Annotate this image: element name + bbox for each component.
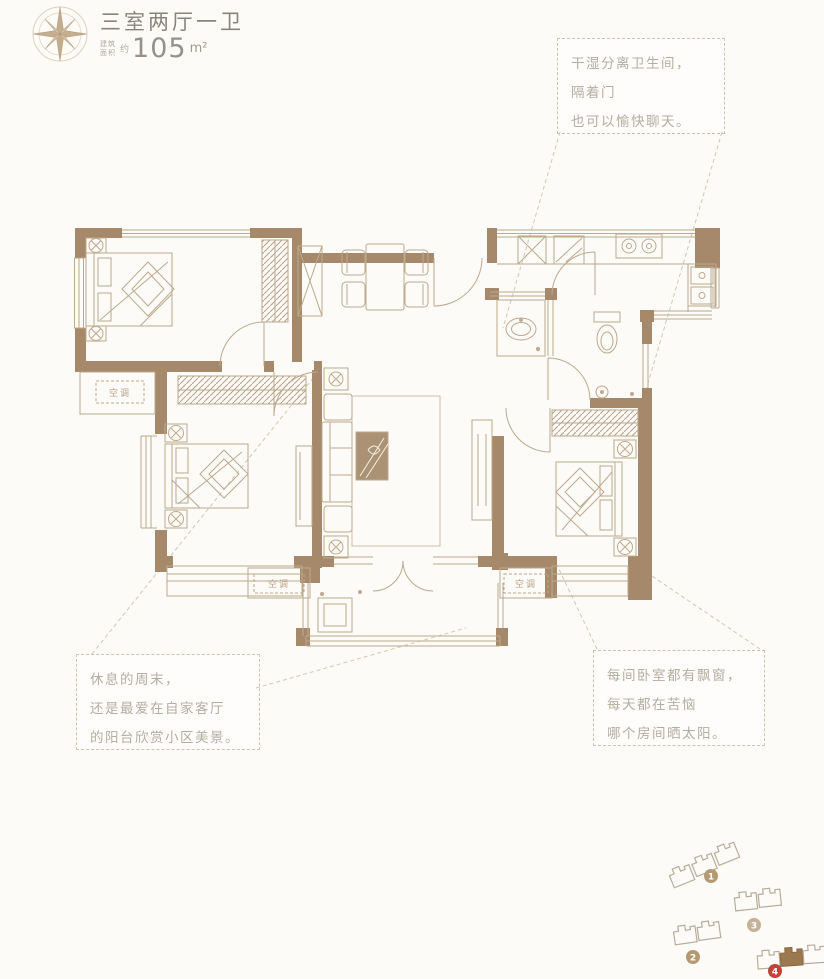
siteplan-building-3 [734,887,782,911]
floorplan-drawing: 空调 空调 空调 [0,0,824,979]
floorplan-page: 三室两厅一卫 建筑 面积 约 105 m² 干湿分离卫生间， 隔着门 也可以愉快… [0,0,824,979]
svg-text:空调: 空调 [515,578,537,590]
balcony-fixtures [318,591,362,633]
living-room-furniture [322,368,492,558]
building-badge-1: 1 [708,873,714,883]
bedroom2-furniture [165,376,312,528]
callout-leader-lines [92,132,760,688]
master-bedroom-furniture [552,410,638,556]
bedroom1-furniture [86,238,322,341]
bathroom-fixtures [497,300,634,398]
siteplan-building-4 [757,944,824,969]
siteplan: 1 2 3 4 [666,840,824,978]
compass-icon [33,7,87,61]
siteplan-building-2 [673,920,721,945]
siteplan-building-1 [666,840,741,887]
svg-text:空调: 空调 [268,578,290,590]
building-badge-2: 2 [690,954,696,964]
building-badge-4: 4 [772,968,778,978]
svg-text:空调: 空调 [109,387,131,399]
building-badge-3: 3 [751,922,757,932]
